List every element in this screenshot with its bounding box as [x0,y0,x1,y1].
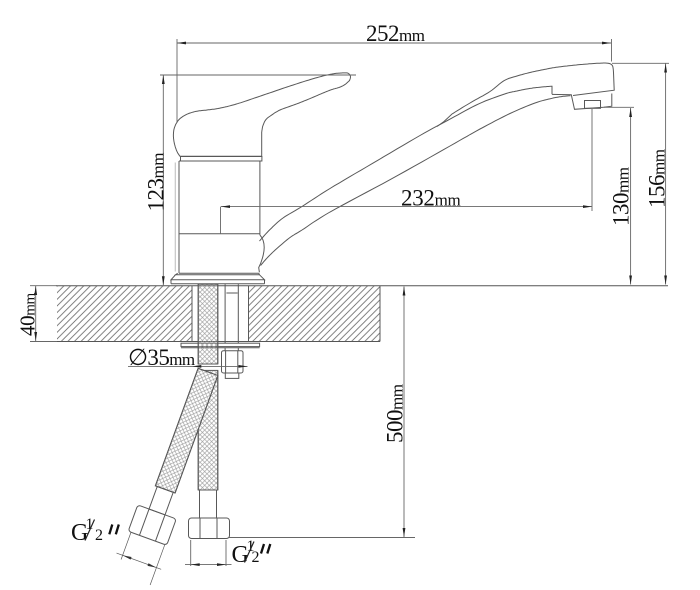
svg-text:130mm: 130mm [609,167,634,226]
svg-text:40mm: 40mm [16,293,40,336]
svg-text:252mm: 252mm [366,21,425,46]
svg-text:156mm: 156mm [645,149,670,208]
svg-text:232mm: 232mm [401,186,461,211]
svg-text:2: 2 [252,549,260,566]
svg-text:123mm: 123mm [144,153,169,212]
svg-text:2: 2 [95,527,103,544]
svg-text:500mm: 500mm [383,384,408,443]
svg-text:∅35mm: ∅35mm [128,345,195,370]
